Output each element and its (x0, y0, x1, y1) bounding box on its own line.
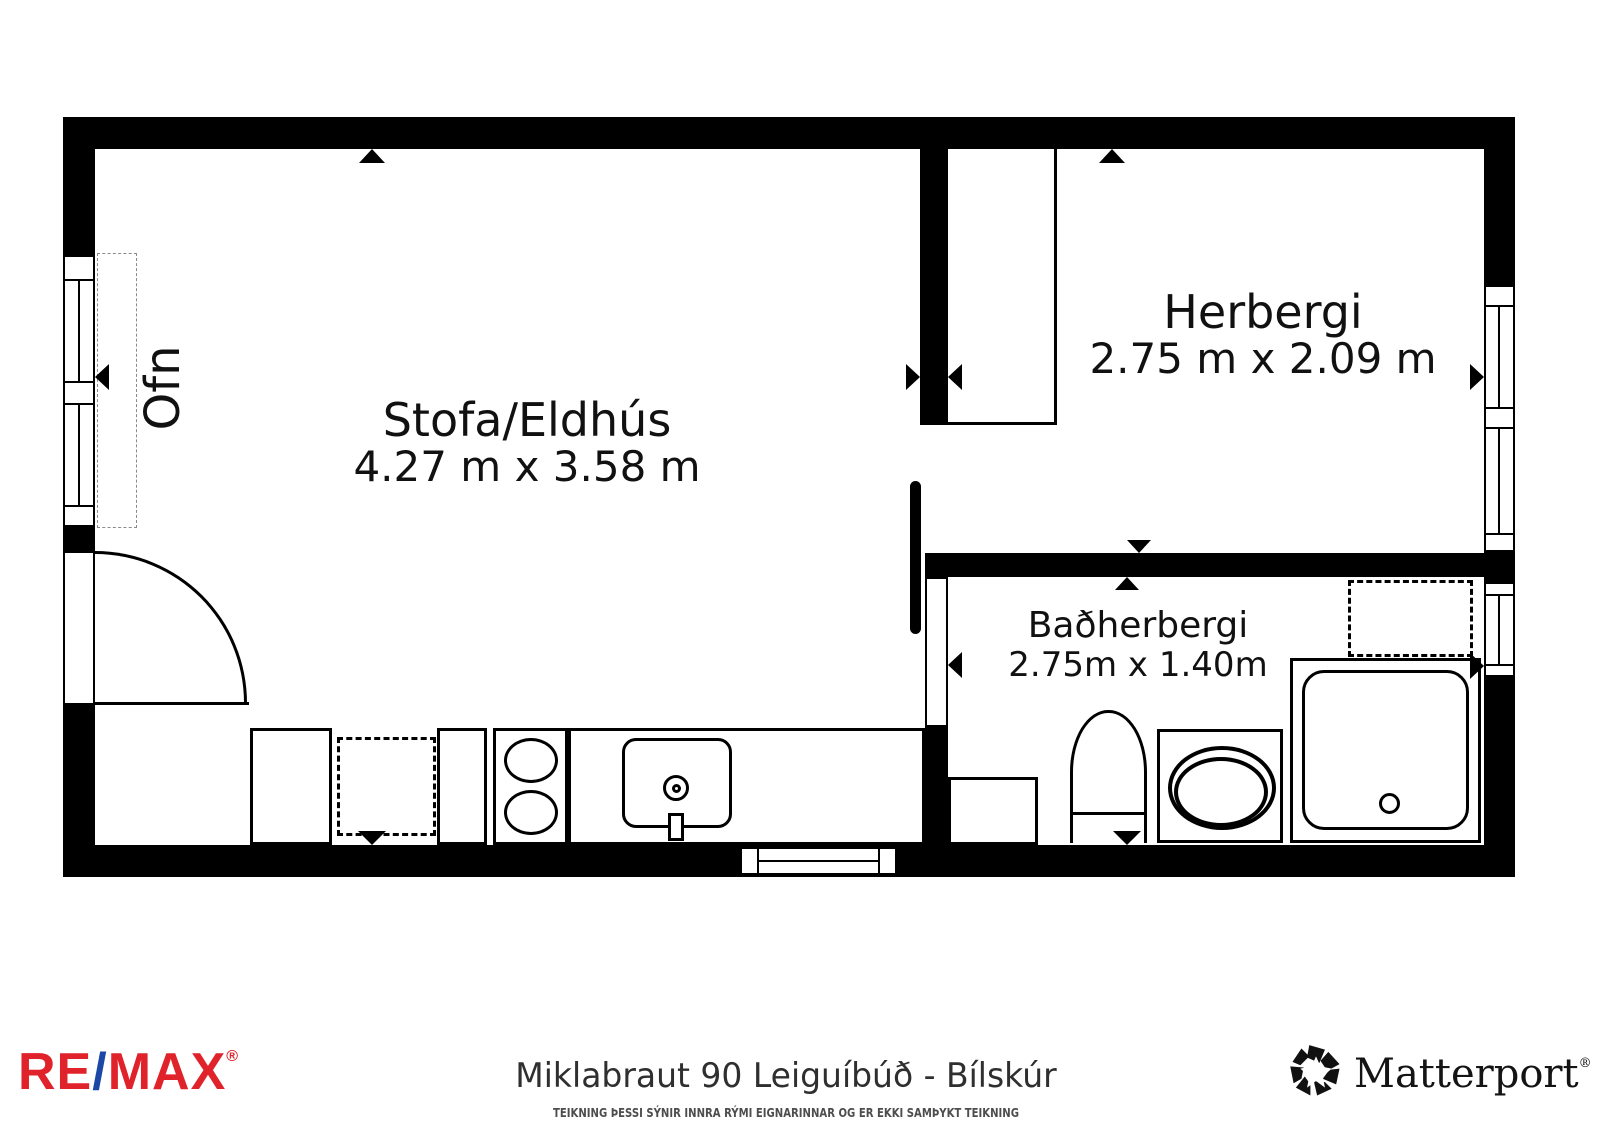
room-dimensions: 4.27 m x 3.58 m (353, 444, 700, 490)
room-dimensions: 2.75m x 1.40m (1008, 646, 1267, 685)
remax-max: MAX (108, 1043, 227, 1101)
open-door-leaf (910, 481, 921, 634)
wall-right-lower (1484, 677, 1515, 877)
toilet (1070, 710, 1147, 843)
wall-left-upper (63, 117, 95, 257)
entry-door-leaf (95, 702, 249, 705)
wall-top (63, 117, 1515, 149)
kitchen-cabinet (250, 728, 332, 845)
marker-left-icon (95, 364, 109, 390)
bathroom-cabinet (948, 777, 1038, 845)
entry-door-opening (63, 551, 95, 705)
floorplan-page: Stofa/Eldhús 4.27 m x 3.58 m Herbergi 2.… (0, 0, 1600, 1131)
plan-title: Miklabraut 90 Leiguíbúð - Bílskúr (398, 1056, 1174, 1096)
window-bathroom (1484, 582, 1515, 677)
room-label-herbergi: Herbergi 2.75 m x 2.09 m (1089, 288, 1436, 382)
washer-door-inner (1174, 757, 1268, 827)
entry-door-arc (95, 551, 247, 703)
kitchen-counter-sink (568, 728, 925, 845)
kitchen-stove (493, 728, 568, 845)
wall-left-lower (63, 704, 95, 877)
marker-down-icon (1113, 831, 1141, 845)
wall-left-mid (63, 527, 95, 552)
window-bottom (740, 847, 897, 875)
shower (1290, 658, 1481, 843)
kitchen-appliance-dashed (337, 737, 436, 836)
wall-stofa-herbergi (920, 149, 948, 425)
wall-right-upper (1484, 117, 1515, 285)
marker-right-icon (906, 364, 920, 390)
marker-down-icon (1127, 540, 1151, 553)
window-left (63, 255, 95, 527)
marker-up-icon (1099, 149, 1125, 163)
remax-slash: / (92, 1043, 107, 1101)
sink-tap-body (668, 813, 684, 841)
marker-left-icon (948, 364, 962, 390)
radiator-zone (97, 253, 137, 528)
bathroom-door-opening (925, 577, 948, 727)
room-name: Baðherbergi (1008, 606, 1267, 646)
room-label-stofa: Stofa/Eldhús 4.27 m x 3.58 m (353, 396, 700, 490)
matterport-wordmark: Matterport® (1354, 1051, 1592, 1097)
wall-bathroom-top (925, 553, 1484, 577)
remax-registered: ® (226, 1048, 239, 1065)
room-name: Herbergi (1089, 288, 1436, 336)
marker-right-icon (1470, 653, 1484, 679)
stove-burner-bottom (504, 790, 558, 835)
marker-right-icon (1470, 364, 1484, 390)
kitchen-counter-a (437, 728, 487, 845)
remax-logo: RE/MAX® (18, 1042, 239, 1102)
radiator-label: Ofn (135, 345, 191, 430)
marker-up-icon (1115, 577, 1139, 590)
marker-down-icon (358, 831, 386, 845)
marker-up-icon (359, 149, 385, 163)
washing-machine (1157, 729, 1283, 843)
room-dimensions: 2.75 m x 2.09 m (1089, 336, 1436, 382)
bathroom-dashed-cabinet (1348, 580, 1473, 657)
plan-disclaimer: TEIKNING ÞESSI SÝNIR INNRA RÝMI EIGNARIN… (450, 1106, 1122, 1120)
remax-re: RE (18, 1043, 92, 1101)
room-label-badherbergi: Baðherbergi 2.75m x 1.40m (1008, 606, 1267, 685)
matterport-registered: ® (1579, 1056, 1592, 1071)
sink-faucet-inner (672, 784, 681, 793)
window-herbergi (1484, 285, 1515, 552)
room-name: Stofa/Eldhús (353, 396, 700, 444)
shower-drain (1379, 793, 1400, 814)
wall-stofa-bathroom (925, 727, 948, 845)
matterport-logo: Matterport® (1288, 1044, 1592, 1104)
marker-left-icon (948, 652, 962, 678)
matterport-pinwheel-icon (1288, 1044, 1344, 1104)
stove-burner-top (504, 738, 558, 783)
wall-right-mid (1484, 552, 1515, 582)
